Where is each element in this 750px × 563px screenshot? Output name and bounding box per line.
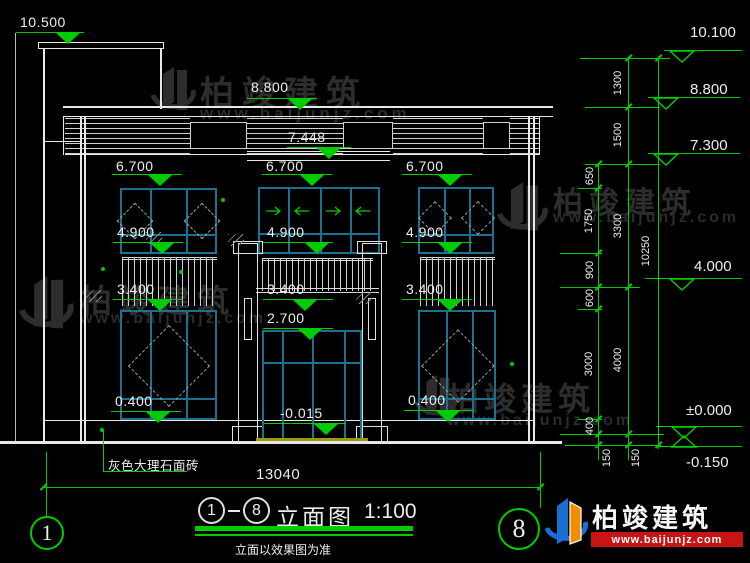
title-underline-thick — [195, 526, 413, 531]
elevation-triangle-icon — [298, 329, 322, 340]
level-stub — [565, 445, 661, 446]
roof-plain-panel — [190, 122, 247, 149]
right-wall-outer — [533, 117, 535, 443]
elevation-value: 0.400 — [115, 393, 153, 409]
elevation-value: -0.015 — [280, 405, 323, 421]
slide-direction-arrow-icon — [355, 206, 371, 216]
node-dot — [179, 270, 183, 274]
slide-direction-arrow-icon — [294, 206, 310, 216]
pilaster-shaft — [238, 243, 258, 442]
brand-logo-icon — [541, 492, 589, 550]
left-wall-outer — [80, 117, 82, 443]
watermark-logo-icon — [16, 272, 74, 336]
dim-value: 3000 — [583, 352, 595, 376]
brand-url-bar: www.baijunjz.com — [591, 532, 743, 547]
elevation-value: 6.700 — [406, 158, 444, 174]
elevation-value: 4.900 — [117, 224, 155, 240]
band-left-edge — [63, 117, 64, 155]
dim-line — [43, 487, 540, 488]
axis-bubble-8: 8 — [498, 508, 540, 550]
elevation-value: 4.900 — [406, 224, 444, 240]
node-dot — [510, 362, 514, 366]
level-stub — [560, 434, 664, 435]
elevation-triangle-icon — [670, 435, 698, 448]
elevation-triangle-icon — [668, 278, 696, 291]
dim-value-overall-width: 13040 — [256, 466, 300, 483]
dim-value: 650 — [584, 167, 596, 185]
elevation-value: 4.900 — [267, 224, 305, 240]
title-dash — [228, 510, 240, 512]
tower-left-wall — [43, 49, 45, 443]
elevation-triangle-icon — [56, 33, 80, 44]
title-axis-start-bubble: 1 — [198, 497, 225, 524]
hatch-mark-icon — [86, 290, 102, 302]
axis-number: 8 — [513, 514, 526, 544]
leader-underline — [103, 471, 187, 472]
ground-line — [0, 441, 562, 444]
elevation-value: 10.100 — [690, 24, 736, 41]
elevation-value: 0.400 — [408, 392, 446, 408]
brand-name: 柏竣建筑 — [592, 498, 712, 535]
hatch-mark-icon — [356, 292, 372, 304]
elevation-value: 3.400 — [117, 281, 155, 297]
elevation-triangle-icon — [314, 424, 338, 435]
elevation-value: 7.448 — [288, 129, 326, 145]
elevation-value: 4.000 — [694, 258, 732, 275]
elevation-value: ±0.000 — [686, 402, 732, 419]
title-underline-thin — [195, 534, 413, 536]
pilaster-shaft — [362, 243, 382, 442]
tower-right-wall — [160, 49, 162, 109]
left-wall-inner — [84, 117, 86, 443]
axis-number: 1 — [207, 502, 216, 520]
dim-value: 400 — [584, 417, 596, 435]
pilaster-slot — [368, 298, 376, 340]
axis-bubble-1: 1 — [30, 516, 64, 550]
chain-line-middle — [628, 57, 629, 460]
slide-direction-arrow-icon — [325, 206, 341, 216]
title-note: 立面以效果图为准 — [235, 541, 331, 558]
dim-value: 150 — [630, 449, 642, 467]
door-threshold — [256, 438, 368, 441]
elevation-triangle-icon — [148, 300, 172, 311]
brand-url: www.baijunjz.com — [612, 534, 723, 546]
roof-louver-panel — [510, 118, 539, 154]
elevation-triangle-icon — [300, 175, 324, 186]
dim-value: 600 — [584, 289, 596, 307]
elevation-value: 6.700 — [266, 158, 304, 174]
pilaster-slot — [244, 298, 252, 340]
dim-value: 3300 — [612, 214, 624, 238]
title-scale: 1:100 — [364, 500, 417, 524]
right-wall-inner — [528, 117, 530, 443]
dim-value: 900 — [584, 261, 596, 279]
dim-value-total-height: 10250 — [640, 236, 652, 267]
watermark-logo-icon — [494, 176, 548, 240]
elevation-drawing-canvas: 柏竣建筑 www.baijunjz.com 柏竣建筑 www.baijunjz.… — [0, 0, 750, 563]
hatch-mark-icon — [228, 234, 244, 246]
elevation-triangle-icon — [436, 411, 460, 422]
roof-plain-panel — [343, 122, 393, 149]
elevation-value: 8.800 — [690, 81, 728, 98]
mullion — [350, 189, 352, 252]
elevation-value: 7.300 — [690, 137, 728, 154]
axis-number: 8 — [252, 502, 261, 520]
chain-line-total — [658, 57, 659, 449]
level-line — [656, 446, 742, 447]
elevation-value: 8.800 — [251, 79, 289, 95]
elevation-value: 3.400 — [406, 281, 444, 297]
elevation-triangle-icon — [668, 50, 696, 63]
elevation-triangle-icon — [288, 99, 312, 110]
node-dot — [221, 198, 225, 202]
elevation-value: 3.400 — [267, 281, 305, 297]
elevation-value: -0.150 — [686, 454, 729, 471]
elevation-triangle-icon — [438, 175, 462, 186]
level-line — [656, 426, 742, 427]
elevation-triangle-icon — [150, 243, 174, 254]
leader-line — [103, 431, 104, 472]
slide-direction-arrow-icon — [265, 206, 281, 216]
extension-line — [15, 33, 16, 443]
band-right-edge — [539, 117, 540, 155]
dim-value: 1300 — [612, 71, 624, 95]
elevation-triangle-icon — [317, 148, 341, 159]
elevation-value: 6.700 — [116, 158, 154, 174]
dim-value: 1500 — [612, 123, 624, 147]
dim-value: 1750 — [583, 209, 595, 233]
node-dot — [101, 267, 105, 271]
elevation-triangle-icon — [146, 412, 170, 423]
dim-value: 150 — [601, 449, 613, 467]
door-rail — [264, 362, 360, 364]
roof-plain-panel — [483, 122, 510, 149]
watermark-url: www.baijunjz.com — [553, 209, 739, 227]
elevation-value: 10.500 — [20, 14, 66, 30]
elevation-triangle-icon — [438, 300, 462, 311]
elevation-triangle-icon — [438, 243, 462, 254]
dim-value: 4000 — [612, 348, 624, 372]
elevation-triangle-icon — [148, 175, 172, 186]
axis-number: 1 — [42, 520, 53, 546]
level-stub — [585, 107, 660, 108]
elevation-triangle-icon — [305, 243, 329, 254]
elevation-value: 2.700 — [267, 310, 305, 326]
roof-louver-panel — [393, 118, 483, 154]
title-axis-end-bubble: 8 — [243, 497, 270, 524]
